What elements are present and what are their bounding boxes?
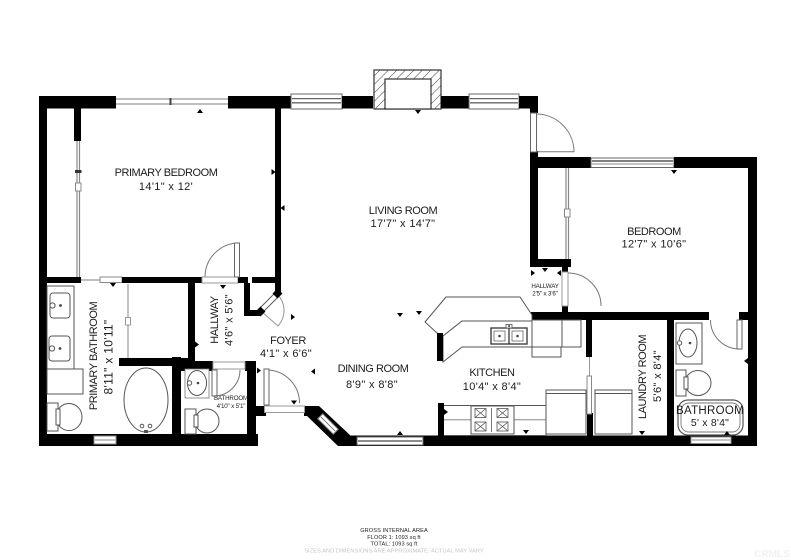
svg-text:LIVING ROOM: LIVING ROOM [369,205,438,217]
svg-text:CRMLS: CRMLS [754,549,790,560]
svg-text:14'1" x 12': 14'1" x 12' [139,181,193,193]
svg-text:8'9" x 8'8": 8'9" x 8'8" [346,379,398,391]
svg-text:DINING ROOM: DINING ROOM [338,363,409,375]
svg-text:GROSS INTERNAL AREA: GROSS INTERNAL AREA [360,528,428,534]
svg-text:17'7" x 14'7": 17'7" x 14'7" [371,218,436,230]
svg-text:8'11" x 10'11": 8'11" x 10'11" [102,320,116,395]
svg-text:PRIMARY BATHROOM: PRIMARY BATHROOM [88,302,100,411]
svg-text:HALLWAY: HALLWAY [209,295,221,343]
svg-text:4'10" x 5'1": 4'10" x 5'1" [217,403,246,410]
svg-text:HALLWAY: HALLWAY [531,283,558,290]
svg-text:5'6" x 8'4": 5'6" x 8'4" [652,350,664,402]
svg-text:4'6" x 5'6": 4'6" x 5'6" [224,294,236,346]
svg-text:SIZES AND DIMENSIONS ARE APPRO: SIZES AND DIMENSIONS ARE APPROXIMATE, AC… [304,549,484,555]
svg-text:4'1" x 6'6": 4'1" x 6'6" [260,348,312,360]
svg-text:TOTAL: 1093 sq ft: TOTAL: 1093 sq ft [371,542,418,548]
svg-text:BEDROOM: BEDROOM [627,226,681,238]
svg-text:12'7" x 10'6": 12'7" x 10'6" [622,239,687,251]
svg-text:2'5" x 3'6": 2'5" x 3'6" [532,291,557,298]
svg-text:10'4" x 8'4": 10'4" x 8'4" [463,381,521,393]
svg-text:5' x 8'4": 5' x 8'4" [691,417,729,429]
svg-text:FLOOR 1: 1093 sq ft: FLOOR 1: 1093 sq ft [367,535,421,541]
svg-text:KITCHEN: KITCHEN [469,367,515,379]
svg-text:BATHROOM: BATHROOM [214,395,248,402]
svg-text:PRIMARY BEDROOM: PRIMARY BEDROOM [115,167,218,179]
svg-text:LAUNDRY ROOM: LAUNDRY ROOM [637,335,649,419]
svg-text:BATHROOM: BATHROOM [676,405,744,417]
svg-text:FOYER: FOYER [270,335,306,347]
